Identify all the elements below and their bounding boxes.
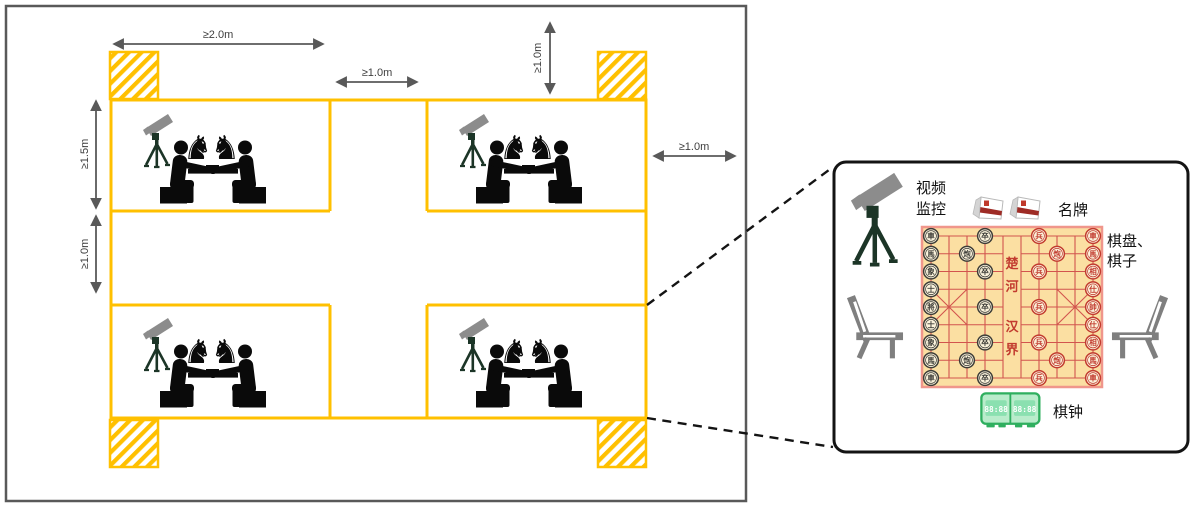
svg-text:馬: 馬 — [927, 249, 935, 258]
board-label-line1: 棋盘、 — [1107, 232, 1152, 250]
svg-text:炮: 炮 — [1053, 248, 1061, 258]
svg-text:兵: 兵 — [1035, 337, 1043, 347]
venue-layout-page: ♞ ♞ ≥2.0m ≥1.0m ≥ — [0, 0, 1200, 508]
clock-display-right: 88:88 — [1013, 405, 1037, 414]
svg-text:士: 士 — [927, 284, 935, 294]
dim-label-right-clearance: ≥1.0m — [679, 141, 710, 153]
svg-text:相: 相 — [1089, 337, 1097, 347]
pillar-top-right — [598, 52, 646, 99]
pillar-top-left — [110, 52, 158, 99]
svg-text:相: 相 — [1089, 266, 1097, 276]
svg-text:界: 界 — [1005, 342, 1018, 358]
dim-label-row-depth: ≥1.5m — [79, 139, 91, 170]
clock-display-left: 88:88 — [984, 405, 1008, 414]
svg-text:車: 車 — [1089, 373, 1097, 383]
svg-text:仕: 仕 — [1088, 319, 1097, 329]
board-label-line2: 棋子 — [1107, 252, 1137, 270]
dim-label-row-gap: ≥1.0m — [79, 239, 91, 270]
nameplate-icon-left — [973, 197, 1003, 219]
svg-text:馬: 馬 — [1089, 356, 1097, 365]
nameplate-icon-right — [1010, 197, 1040, 219]
clock-label: 棋钟 — [1053, 403, 1083, 421]
svg-text:兵: 兵 — [1035, 302, 1043, 312]
camera-label-line2: 监控 — [916, 200, 946, 218]
xiangqi-board: 楚河汉界車馬象士將士象馬車炮炮卒卒卒卒卒車馬相仕帥仕相馬車炮炮兵兵兵兵兵 — [922, 227, 1102, 387]
svg-text:馬: 馬 — [927, 356, 935, 365]
svg-text:卒: 卒 — [981, 373, 989, 383]
svg-text:兵: 兵 — [1035, 231, 1043, 241]
svg-text:象: 象 — [927, 337, 935, 347]
svg-text:楚: 楚 — [1005, 256, 1019, 272]
svg-text:炮: 炮 — [1053, 355, 1061, 365]
dim-label-top-width: ≥2.0m — [203, 29, 234, 41]
svg-text:炮: 炮 — [963, 355, 971, 365]
svg-text:象: 象 — [927, 266, 935, 276]
svg-text:車: 車 — [1089, 231, 1097, 241]
chess-clock-icon: 88:88 88:88 — [981, 393, 1039, 427]
dim-label-top-clearance: ≥1.0m — [532, 43, 544, 74]
svg-text:仕: 仕 — [1088, 284, 1097, 294]
venue-layout-diagram: ♞ ♞ ≥2.0m ≥1.0m ≥ — [0, 0, 1200, 508]
svg-text:馬: 馬 — [1089, 249, 1097, 258]
svg-text:河: 河 — [1005, 279, 1018, 295]
pillar-bottom-left — [110, 420, 158, 467]
svg-text:兵: 兵 — [1035, 373, 1043, 383]
svg-text:炮: 炮 — [963, 248, 971, 258]
svg-text:卒: 卒 — [981, 302, 989, 312]
svg-text:車: 車 — [927, 373, 935, 383]
svg-text:卒: 卒 — [981, 266, 989, 276]
svg-text:帥: 帥 — [1089, 302, 1097, 312]
svg-text:士: 士 — [927, 319, 935, 329]
svg-text:汉: 汉 — [1005, 319, 1019, 335]
dim-label-center-aisle: ≥1.0m — [362, 67, 393, 79]
svg-text:卒: 卒 — [981, 337, 989, 347]
pillar-bottom-right — [598, 420, 646, 467]
svg-text:將: 將 — [927, 302, 935, 312]
svg-text:車: 車 — [927, 231, 935, 241]
svg-text:卒: 卒 — [981, 231, 989, 241]
camera-label-line1: 视频 — [916, 179, 946, 197]
nameplate-label: 名牌 — [1058, 201, 1088, 219]
svg-text:兵: 兵 — [1035, 266, 1043, 276]
